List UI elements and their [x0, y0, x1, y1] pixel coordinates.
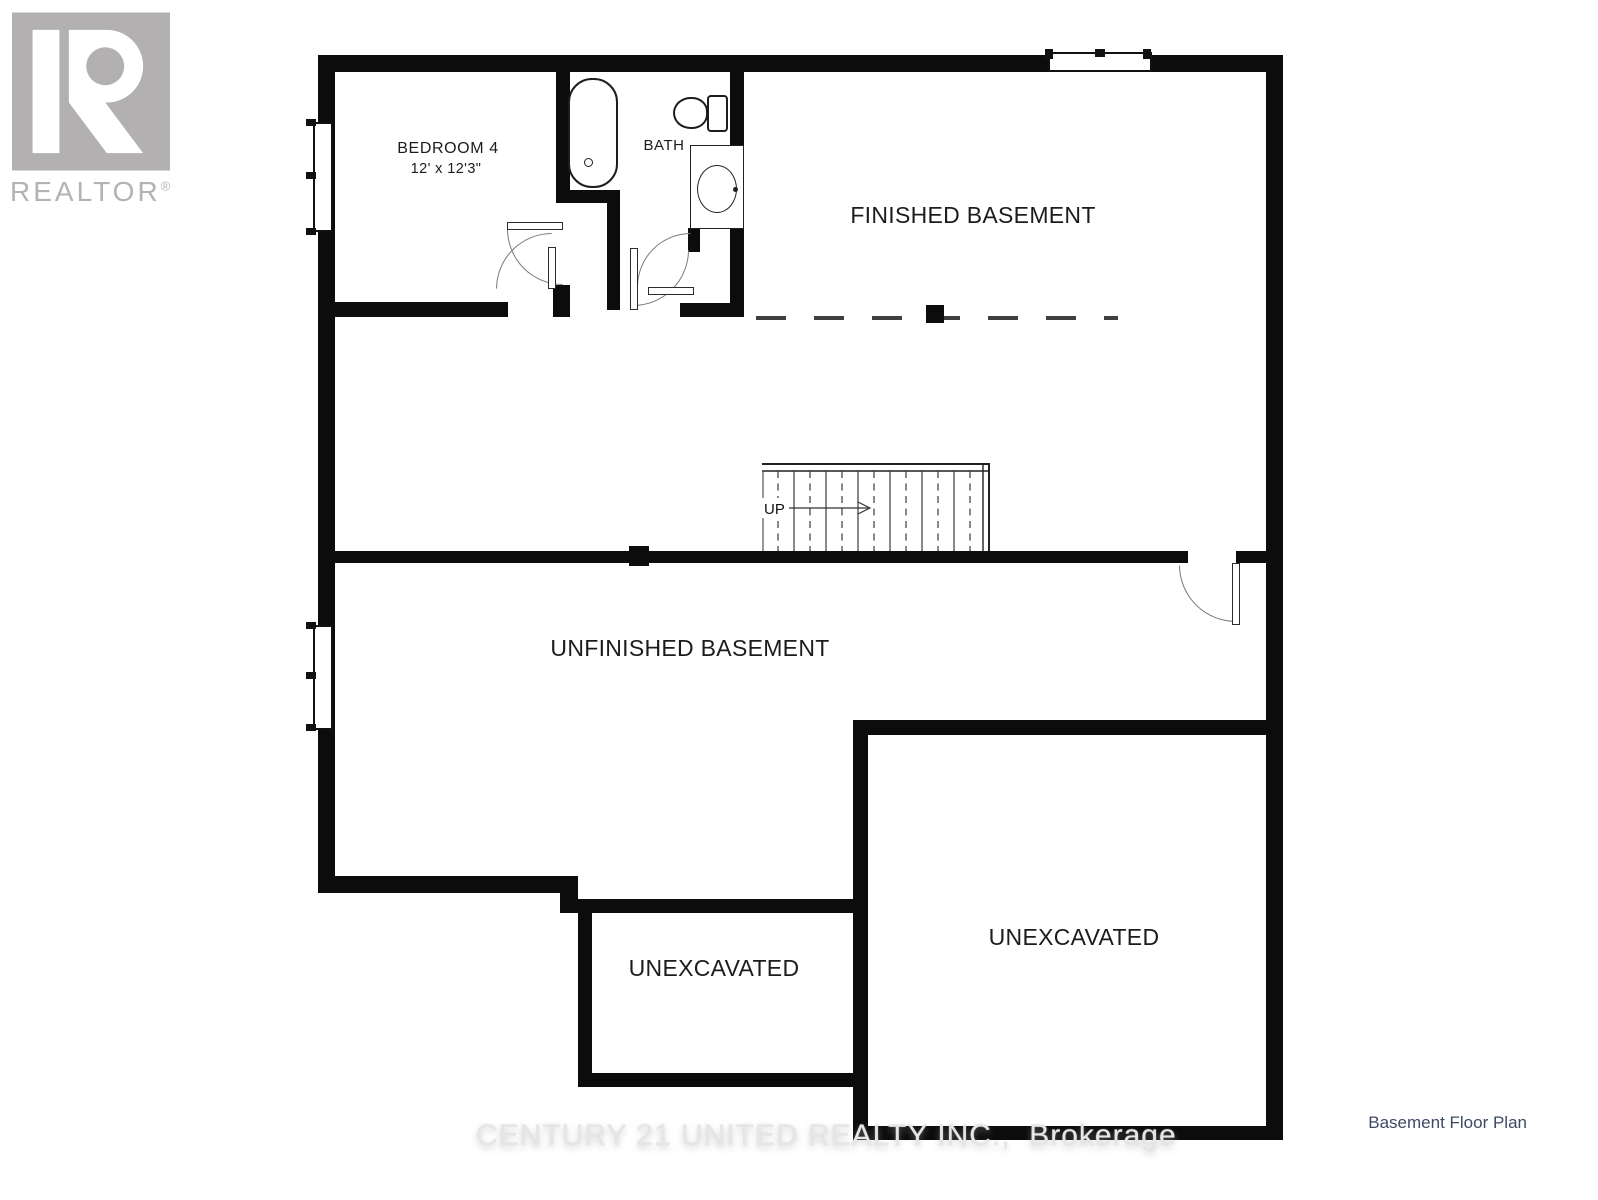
floor-plan-canvas: REALTOR® [0, 0, 1598, 1200]
window-tick [306, 119, 316, 126]
wall-unexcavated-left-side [578, 899, 592, 1087]
plan-caption: Basement Floor Plan [1368, 1113, 1527, 1133]
window-tick [306, 672, 316, 679]
window-tick [1143, 49, 1151, 59]
wall-bath-right-upper [730, 72, 744, 145]
window-left-upper [313, 122, 333, 232]
window-tick [306, 724, 316, 731]
wall-unexcavated-right-top [853, 720, 1283, 735]
room-label-bedroom4: BEDROOM 4 [397, 140, 498, 158]
window-tick [306, 228, 316, 235]
toilet-icon [673, 97, 708, 129]
sink-icon [697, 165, 737, 213]
door-leaf-basement [1232, 563, 1240, 625]
wall-bath-right-lower [730, 228, 744, 317]
support-post-middle [629, 546, 649, 566]
room-label-finished-basement: FINISHED BASEMENT [850, 202, 1095, 229]
room-label-unfinished-basement: UNFINISHED BASEMENT [550, 635, 829, 662]
door-swing-closet [496, 233, 552, 289]
room-label-bath: BATH [644, 137, 685, 154]
realtor-logo: REALTOR® [0, 0, 200, 220]
support-post-beam [926, 305, 944, 323]
wall-hall-bath-divider [607, 203, 620, 310]
wall-middle-door-stub [1236, 551, 1266, 563]
stairs-up-label: UP [764, 501, 785, 518]
faucet-icon [733, 187, 738, 192]
wall-right [1266, 55, 1283, 1140]
window-tick [306, 622, 316, 629]
room-label-unexcavated-right: UNEXCAVATED [989, 924, 1160, 951]
toilet-tank-icon [707, 95, 728, 132]
window-tick [306, 172, 316, 179]
wall-middle [335, 551, 1188, 563]
wall-unexcavated-left-bottom [578, 1073, 868, 1087]
bathtub-icon [568, 78, 618, 188]
staircase: UP [762, 462, 990, 552]
wall-closet-stub [553, 285, 570, 317]
wall-bedroom-bottom [318, 302, 508, 317]
room-dimensions-bedroom4: 12' x 12'3" [411, 161, 482, 177]
wall-unexcavated-left-top [560, 899, 868, 913]
door-swing-basement [1179, 565, 1236, 622]
door-leaf-bath [630, 248, 638, 310]
wall-unfinished-bottom [318, 876, 578, 893]
window-tick [1095, 49, 1105, 57]
window-left-lower [313, 625, 333, 730]
realtor-r-icon [12, 10, 170, 173]
door-leaf-bath-2 [648, 287, 694, 295]
door-leaf-bedroom [507, 222, 563, 230]
realtor-wordmark: REALTOR® [10, 176, 170, 208]
door-leaf-closet [548, 247, 556, 289]
brokerage-watermark: CENTURY 21 UNITED REALTY INC., Brokerage [476, 1119, 1177, 1153]
bathtub-drain-icon [584, 158, 593, 167]
registered-mark: ® [161, 179, 171, 194]
wall-unexcavated-right-side [853, 720, 868, 1140]
room-label-unexcavated-left: UNEXCAVATED [629, 955, 800, 982]
wall-tub-alcove-bottom [556, 190, 620, 203]
window-tick [1045, 49, 1053, 59]
door-swing-bath-2 [637, 233, 691, 287]
